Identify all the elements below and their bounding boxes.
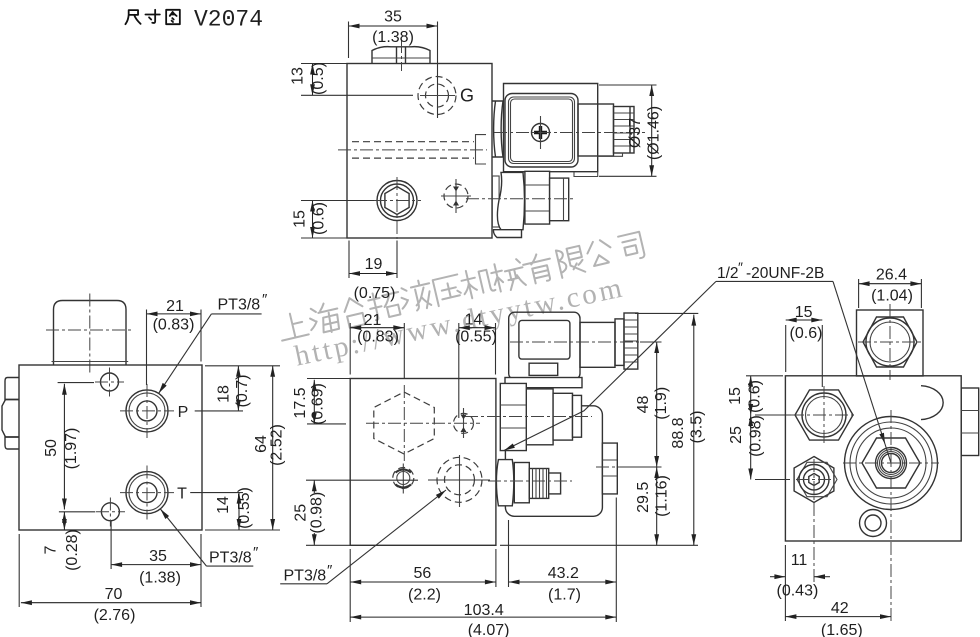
svg-text:(0.55): (0.55)	[455, 329, 497, 346]
svg-text:(0.7): (0.7)	[234, 375, 251, 408]
svg-text:(1.9): (1.9)	[653, 387, 670, 420]
svg-text:(0.5): (0.5)	[310, 62, 327, 95]
svg-text:48: 48	[635, 396, 652, 414]
svg-text:103.4: 103.4	[464, 602, 504, 619]
svg-text:(0.83): (0.83)	[357, 329, 399, 346]
svg-text:(1.97): (1.97)	[63, 428, 80, 470]
svg-text:21: 21	[364, 312, 382, 329]
svg-text:(0.6): (0.6)	[311, 202, 328, 235]
svg-text:(1.16): (1.16)	[654, 475, 671, 517]
svg-text:(0.69): (0.69)	[310, 383, 327, 425]
svg-text:(1.65): (1.65)	[821, 622, 863, 637]
svg-text:35: 35	[384, 9, 402, 26]
svg-text:43.2: 43.2	[548, 565, 579, 582]
svg-text:PT3/8: PT3/8	[284, 568, 327, 585]
svg-text:(0.98): (0.98)	[309, 492, 326, 534]
svg-text:29.5: 29.5	[635, 482, 652, 513]
svg-text:1/2: 1/2	[717, 265, 739, 282]
svg-text:88.8: 88.8	[670, 417, 687, 448]
svg-text:″: ″	[738, 259, 743, 275]
svg-text:15: 15	[727, 387, 744, 405]
svg-text:56: 56	[414, 565, 432, 582]
svg-text:(0.6): (0.6)	[790, 325, 823, 342]
svg-text:″: ″	[262, 291, 268, 308]
svg-text:T: T	[177, 486, 187, 503]
svg-text:(0.83): (0.83)	[153, 317, 195, 334]
svg-text:(2.76): (2.76)	[94, 607, 136, 624]
svg-text:7: 7	[43, 545, 60, 554]
svg-text:″: ″	[327, 562, 333, 579]
svg-text:35: 35	[149, 548, 167, 565]
svg-text:64: 64	[253, 435, 270, 453]
svg-text:21: 21	[166, 298, 184, 315]
svg-text:V2074: V2074	[194, 7, 263, 33]
svg-text:(Ø1.46): (Ø1.46)	[646, 106, 663, 160]
svg-text:(1.38): (1.38)	[372, 29, 414, 46]
svg-text:P: P	[178, 404, 189, 421]
svg-text:PT3/8: PT3/8	[218, 297, 261, 314]
svg-text:(0.75): (0.75)	[354, 285, 396, 302]
svg-text:25: 25	[293, 504, 310, 522]
svg-text:18: 18	[216, 385, 233, 403]
svg-text:70: 70	[105, 586, 123, 603]
svg-text:13: 13	[290, 67, 307, 85]
svg-text:(1.7): (1.7)	[548, 587, 581, 604]
svg-text:26.4: 26.4	[876, 267, 907, 284]
svg-text:G: G	[460, 86, 474, 106]
svg-text:(0.28): (0.28)	[64, 529, 81, 571]
svg-text:(2.52): (2.52)	[269, 424, 286, 466]
svg-text:PT3/8: PT3/8	[209, 550, 252, 567]
svg-text:17.5: 17.5	[292, 387, 309, 418]
svg-text:11: 11	[791, 552, 808, 569]
svg-text:19: 19	[365, 256, 383, 273]
svg-text:15: 15	[795, 304, 813, 321]
svg-text:50: 50	[43, 439, 60, 457]
svg-text:-20UNF-2B: -20UNF-2B	[746, 265, 824, 282]
svg-text:Ø37: Ø37	[627, 118, 644, 148]
svg-text:(2.2): (2.2)	[408, 587, 441, 604]
svg-text:(1.38): (1.38)	[139, 570, 181, 587]
svg-text:25: 25	[728, 426, 745, 444]
svg-text:14: 14	[465, 312, 483, 329]
svg-text:″: ″	[253, 544, 259, 561]
svg-text:(0.43): (0.43)	[777, 583, 819, 600]
svg-text:(0.55): (0.55)	[236, 487, 253, 529]
svg-text:(3.5): (3.5)	[689, 411, 706, 444]
svg-text:(4.07): (4.07)	[468, 622, 510, 637]
svg-text:(0.6): (0.6)	[747, 380, 764, 413]
svg-text:14: 14	[215, 496, 232, 514]
svg-text:42: 42	[831, 600, 849, 617]
svg-text:(0.98): (0.98)	[748, 415, 765, 457]
svg-text:15: 15	[292, 210, 309, 228]
svg-text:(1.04): (1.04)	[871, 288, 913, 305]
